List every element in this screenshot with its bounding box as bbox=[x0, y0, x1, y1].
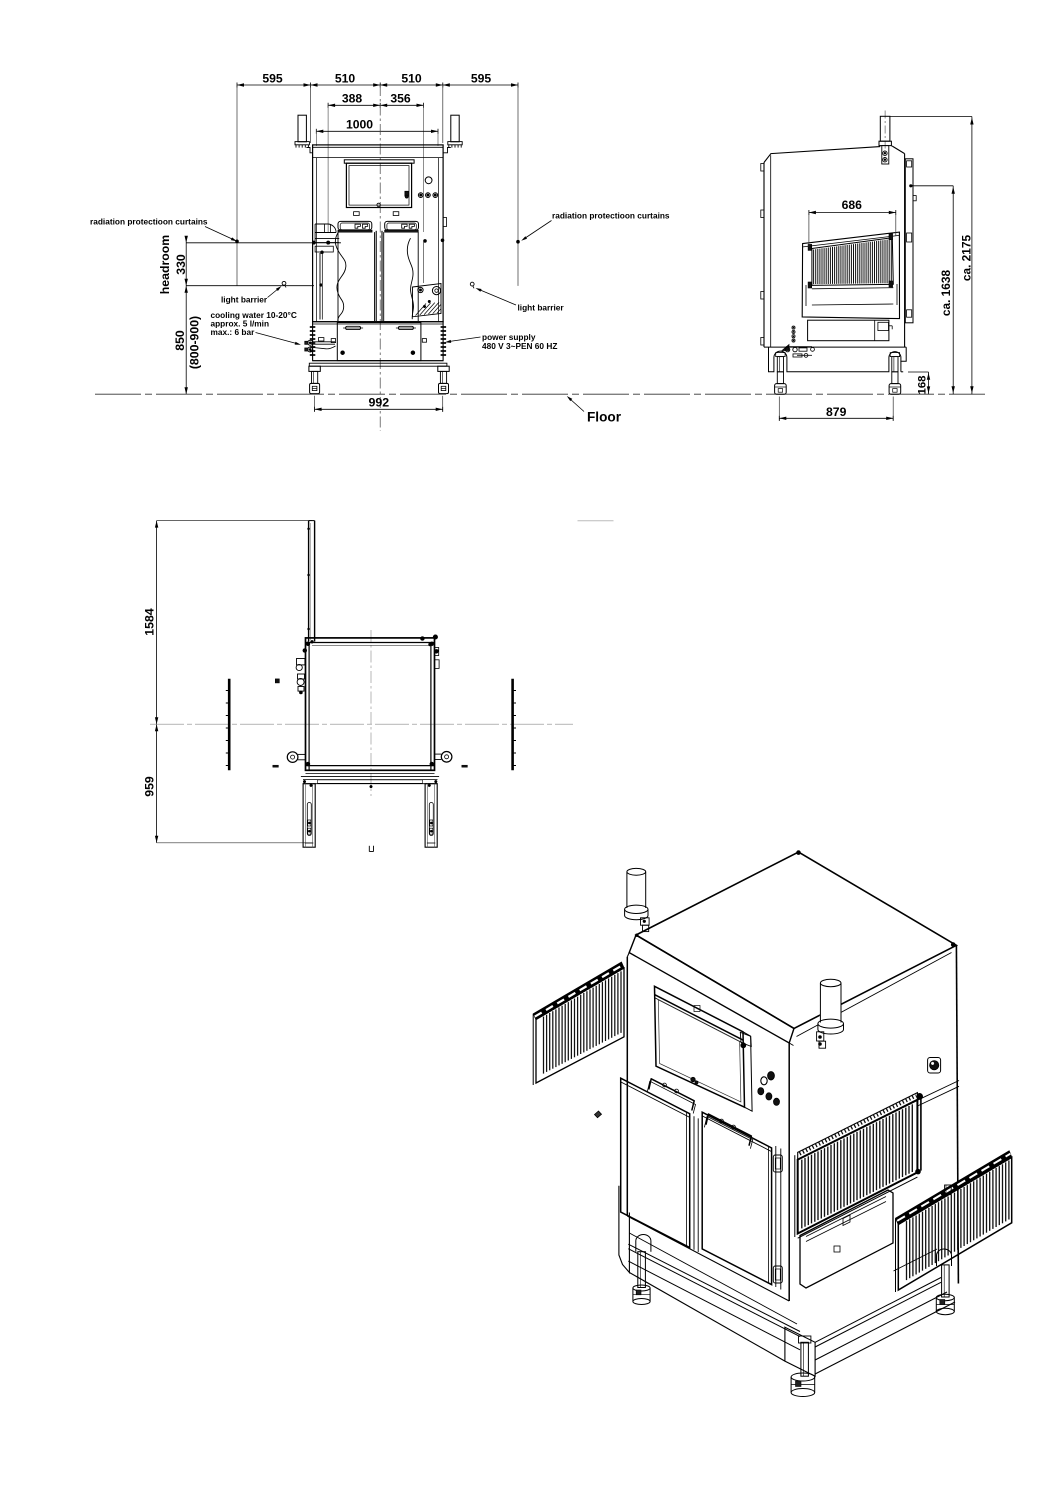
svg-text:686: 686 bbox=[842, 198, 863, 212]
svg-text:radiation protectioon curtains: radiation protectioon curtains bbox=[90, 217, 208, 227]
svg-text:510: 510 bbox=[335, 72, 356, 86]
svg-text:850: 850 bbox=[173, 330, 187, 351]
svg-text:light barrier: light barrier bbox=[518, 303, 565, 313]
svg-text:max.: 6 bar: max.: 6 bar bbox=[211, 327, 256, 337]
svg-text:992: 992 bbox=[368, 396, 389, 410]
svg-text:388: 388 bbox=[342, 92, 363, 106]
svg-text:879: 879 bbox=[826, 405, 847, 419]
svg-text:Floor: Floor bbox=[587, 410, 622, 425]
svg-text:356: 356 bbox=[390, 92, 411, 106]
svg-text:168: 168 bbox=[917, 375, 929, 394]
svg-text:595: 595 bbox=[471, 72, 492, 86]
svg-text:radiation protectioon curtains: radiation protectioon curtains bbox=[552, 210, 670, 220]
svg-text:ca. 1638: ca. 1638 bbox=[939, 269, 953, 316]
svg-text:510: 510 bbox=[401, 72, 422, 86]
svg-text:595: 595 bbox=[262, 72, 283, 86]
svg-text:480 V 3~PEN 60 HZ: 480 V 3~PEN 60 HZ bbox=[482, 341, 557, 351]
svg-text:ca. 2175: ca. 2175 bbox=[960, 234, 974, 281]
svg-text:1584: 1584 bbox=[143, 608, 157, 636]
svg-text:959: 959 bbox=[143, 776, 157, 797]
svg-text:light barrier: light barrier bbox=[221, 295, 268, 305]
svg-text:1000: 1000 bbox=[346, 118, 373, 132]
svg-text:(800-900): (800-900) bbox=[188, 316, 202, 369]
svg-text:330: 330 bbox=[174, 254, 188, 275]
svg-text:headroom: headroom bbox=[158, 235, 172, 295]
